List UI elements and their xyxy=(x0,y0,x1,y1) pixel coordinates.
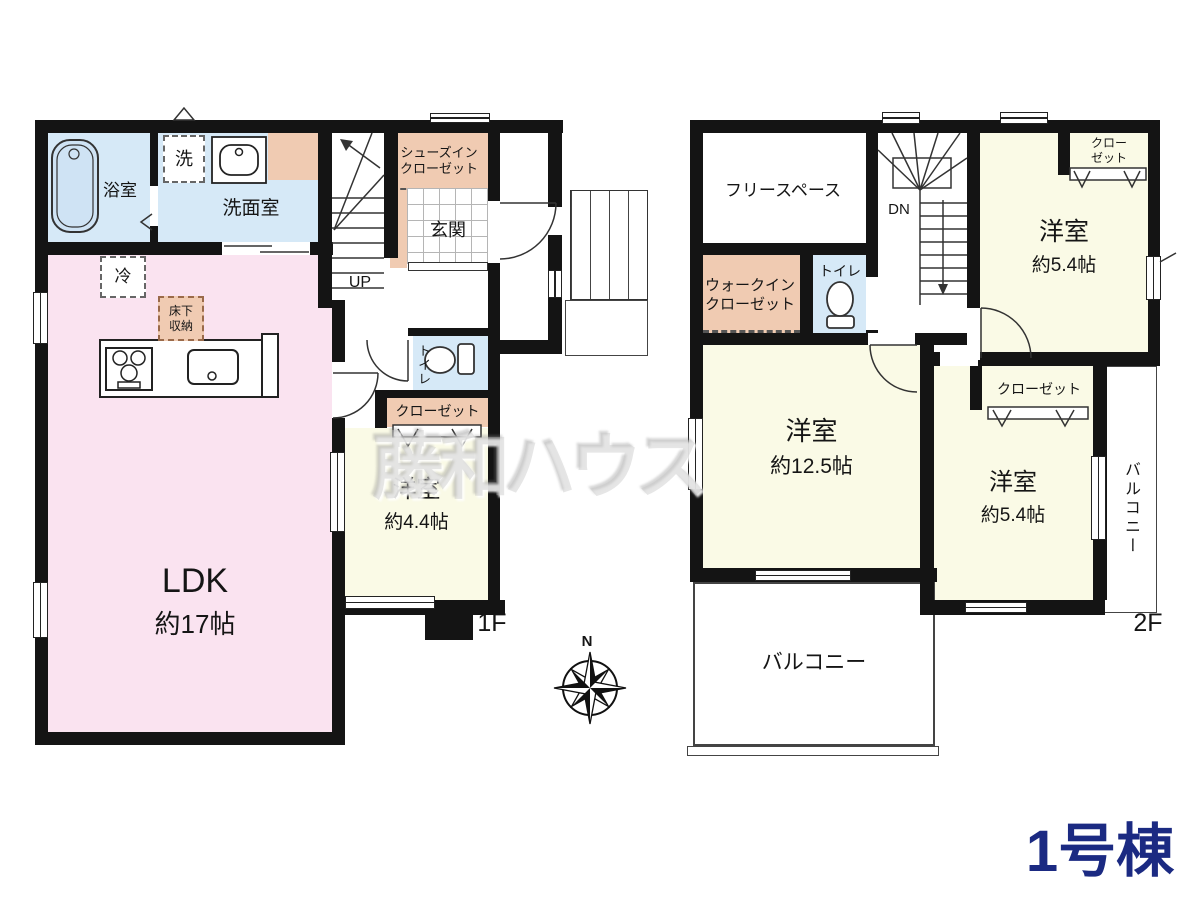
wall xyxy=(35,120,48,745)
balcony-bottom-label: バルコニー xyxy=(693,648,935,678)
window-symbol xyxy=(1146,256,1161,300)
window-symbol xyxy=(430,113,490,123)
free-space-label: フリースペース xyxy=(698,178,868,204)
window-symbol xyxy=(548,270,562,298)
walk-in-closet-label: ウォークイン クローゼット xyxy=(700,268,800,324)
room54b-door-opening xyxy=(940,352,978,366)
wall xyxy=(970,366,982,410)
stairs-dn-label: DN xyxy=(874,200,924,220)
bath-label: 浴室 xyxy=(88,180,152,202)
entry-porch-steps xyxy=(570,190,648,300)
wall xyxy=(548,133,562,207)
stairs-up-label: UP xyxy=(330,272,390,294)
window-symbol xyxy=(755,570,851,581)
wall xyxy=(408,328,500,336)
toilet1-label: トイレ xyxy=(414,338,432,392)
compass-rose xyxy=(554,652,626,724)
window-symbol xyxy=(882,112,920,124)
wall xyxy=(690,243,878,255)
floor2-label: 2F xyxy=(1118,610,1178,638)
wall xyxy=(690,120,1160,133)
closet2-mid-label: クローゼット xyxy=(987,374,1091,406)
toilet2-label: トイレ xyxy=(810,263,870,281)
wall xyxy=(1148,133,1160,363)
wall xyxy=(690,333,980,345)
window-symbol xyxy=(33,582,48,638)
wall xyxy=(488,340,562,354)
hall-door-opening xyxy=(332,362,345,418)
closet2-top-label: クロー ゼット xyxy=(1070,134,1148,168)
entrance-label: 玄関 xyxy=(415,218,481,242)
washer-space: 洗 xyxy=(163,135,205,183)
washroom-label: 洗面室 xyxy=(195,196,307,222)
stairs2-area xyxy=(878,133,967,311)
window-symbol xyxy=(1091,456,1106,540)
toilet2-door-opening xyxy=(866,277,878,330)
fridge-space: 冷 xyxy=(100,256,146,298)
window-symbol xyxy=(345,596,435,609)
room125-door-opening xyxy=(868,333,915,345)
watermark: 藤和ハウス xyxy=(372,408,702,513)
floorplan-canvas: 浴室 洗 洗面室 シューズイン クローゼット 玄関 UP 冷 床下 収納 トイレ… xyxy=(0,0,1200,900)
washroom-sliding-door-opening xyxy=(222,242,310,255)
front-door-opening xyxy=(488,201,500,263)
window-symbol xyxy=(965,602,1027,613)
entrance-step-edge xyxy=(408,262,488,271)
shoes-in-closet-label: シューズイン クローゼット xyxy=(392,136,486,186)
room125-label: 洋室 約12.5帖 xyxy=(703,400,920,495)
compass-north-label: N xyxy=(572,633,602,651)
room54b-label: 洋室 約5.4帖 xyxy=(933,450,1093,545)
entry-approach-landing xyxy=(565,300,648,356)
balcony-side-label: バルコニー xyxy=(1116,438,1144,578)
underfloor-storage: 床下 収納 xyxy=(158,296,204,341)
wall xyxy=(35,732,345,745)
floor1-label: 1F xyxy=(462,610,522,638)
sliding-door-symbol xyxy=(330,452,345,532)
wall xyxy=(1058,133,1070,175)
room54a-label: 洋室 約5.4帖 xyxy=(980,200,1148,295)
ldk-label: LDK 約17帖 xyxy=(60,550,330,650)
window-symbol xyxy=(1000,112,1048,124)
window-symbol xyxy=(33,292,48,344)
balcony-edge-strip xyxy=(687,746,939,756)
unit-number-label: 1号棟 xyxy=(1005,812,1195,892)
